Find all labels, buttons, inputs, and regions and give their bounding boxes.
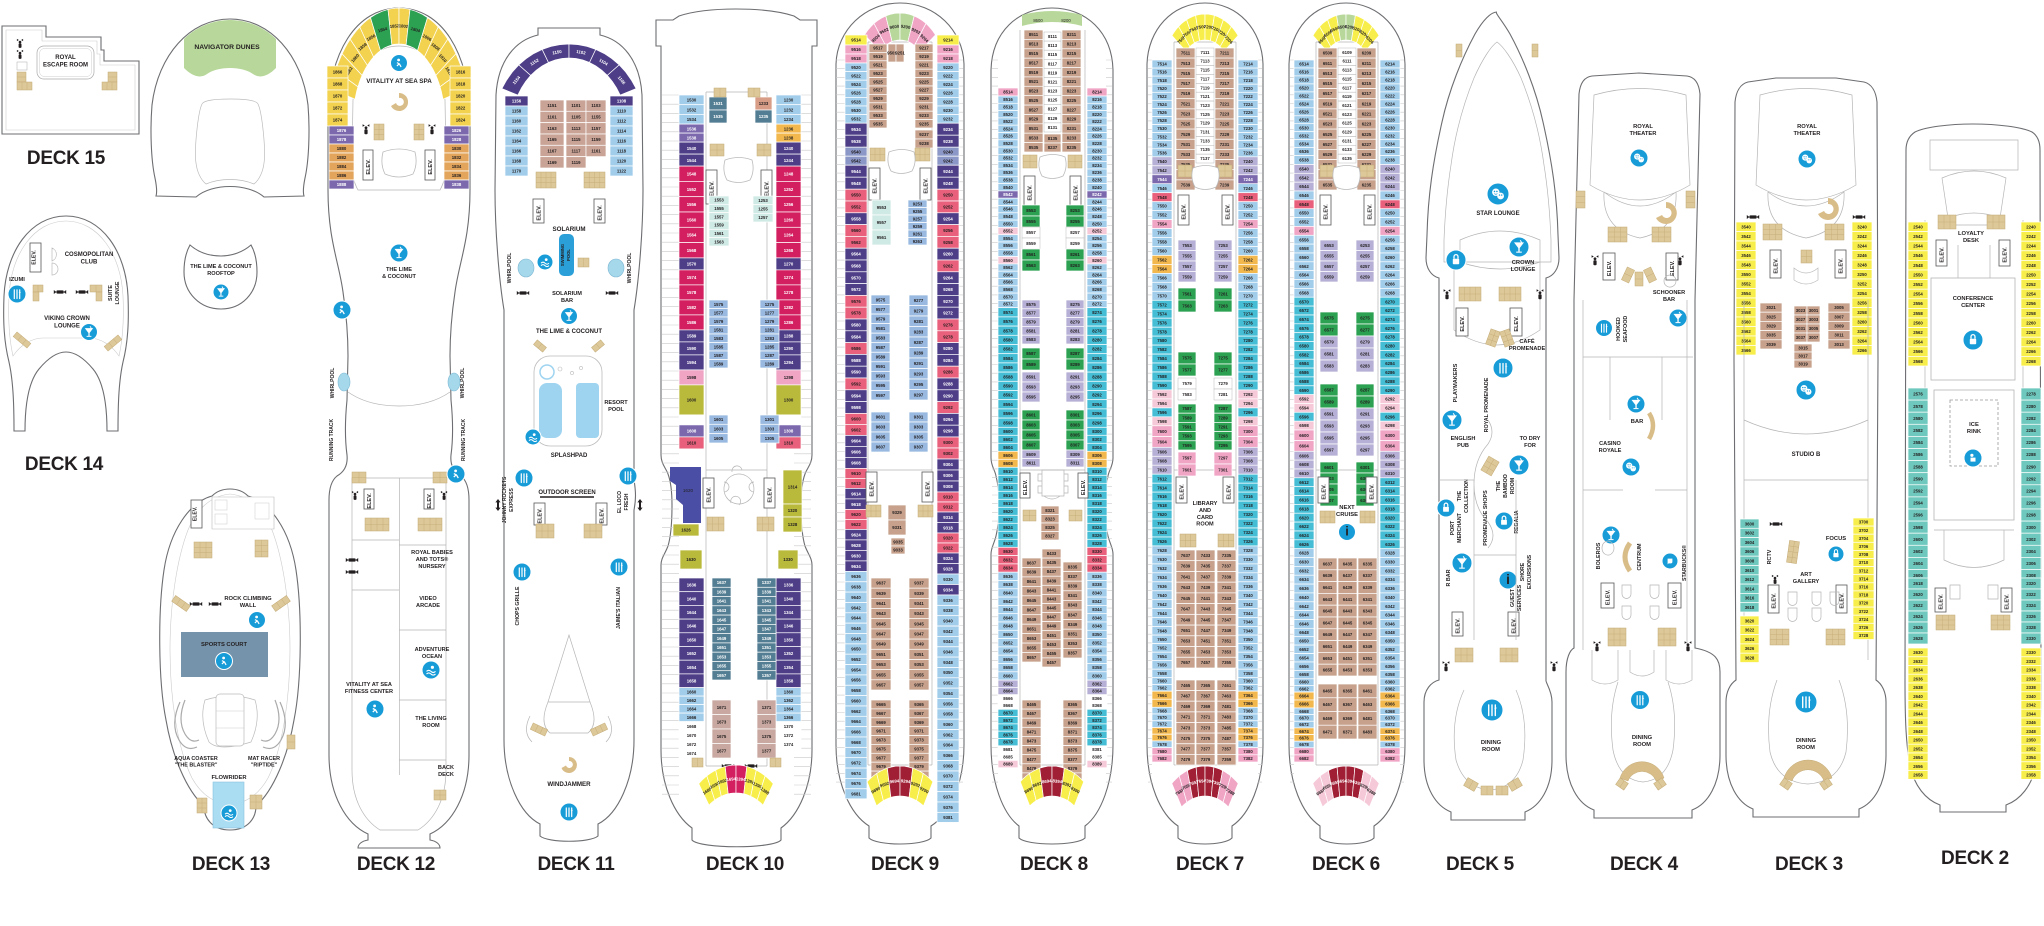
svg-text:6509: 6509 (1323, 51, 1333, 56)
svg-text:3610: 3610 (1745, 568, 1755, 573)
svg-text:8318: 8318 (1092, 501, 1102, 506)
svg-text:BAR: BAR (1631, 419, 1644, 425)
svg-text:6254: 6254 (1385, 228, 1395, 233)
svg-text:6642: 6642 (1299, 604, 1309, 609)
svg-text:9310: 9310 (943, 495, 953, 500)
svg-text:8214: 8214 (1092, 90, 1102, 95)
svg-text:6111: 6111 (1342, 59, 1352, 64)
svg-text:1583: 1583 (714, 336, 724, 341)
svg-text:2302: 2302 (2026, 537, 2036, 542)
svg-text:8340: 8340 (1092, 591, 1102, 596)
svg-text:8586: 8586 (1003, 365, 1013, 370)
svg-text:8230: 8230 (1092, 148, 1102, 153)
svg-text:6277: 6277 (1360, 328, 1370, 333)
svg-text:6525: 6525 (1323, 132, 1333, 137)
svg-text:2640: 2640 (1913, 694, 1923, 699)
svg-text:6213: 6213 (1362, 71, 1372, 76)
svg-text:1575: 1575 (714, 302, 724, 307)
svg-text:8337: 8337 (1068, 574, 1078, 579)
svg-text:9645: 9645 (876, 621, 886, 626)
svg-text:JAIME'S ITALIAN: JAIME'S ITALIAN (616, 587, 622, 629)
svg-text:6368: 6368 (1385, 709, 1395, 714)
svg-text:6530: 6530 (1299, 125, 1309, 130)
svg-text:9526: 9526 (851, 91, 861, 96)
svg-text:VITALITY AT SEA: VITALITY AT SEA (346, 682, 392, 688)
svg-text:8607: 8607 (1026, 443, 1036, 448)
svg-text:8643: 8643 (1027, 589, 1037, 594)
svg-text:1118: 1118 (617, 149, 627, 154)
svg-text:2618: 2618 (1913, 581, 1923, 586)
svg-text:ROOM: ROOM (422, 723, 440, 729)
svg-text:7526: 7526 (1157, 110, 1167, 115)
svg-text:3624: 3624 (1745, 637, 1755, 642)
svg-text:8217: 8217 (1067, 60, 1077, 65)
svg-text:6322: 6322 (1385, 524, 1395, 529)
svg-text:6330: 6330 (1385, 560, 1395, 565)
svg-text:ELEV.: ELEV. (1181, 204, 1187, 220)
svg-text:9612: 9612 (851, 481, 861, 486)
svg-text:3011: 3011 (1834, 333, 1844, 338)
svg-text:6300: 6300 (1385, 433, 1395, 438)
svg-text:9272: 9272 (943, 311, 953, 316)
svg-text:3706: 3706 (1859, 544, 1869, 549)
svg-text:1355: 1355 (762, 664, 772, 669)
svg-text:7292: 7292 (1243, 392, 1253, 397)
svg-text:8570: 8570 (1003, 294, 1013, 299)
svg-text:2308: 2308 (2026, 573, 2036, 578)
svg-text:9238: 9238 (943, 139, 953, 144)
svg-text:7528: 7528 (1157, 118, 1167, 123)
svg-text:6595: 6595 (1324, 436, 1334, 441)
svg-text:9355: 9355 (914, 672, 924, 677)
svg-text:3009: 3009 (1834, 324, 1844, 329)
svg-text:8580: 8580 (1003, 338, 1013, 343)
svg-text:7461: 7461 (1222, 683, 1232, 688)
svg-text:1557: 1557 (714, 214, 724, 219)
svg-text:7310: 7310 (1243, 467, 1253, 472)
svg-text:9033: 9033 (893, 547, 903, 552)
svg-text:WALL: WALL (240, 603, 257, 609)
svg-text:7554: 7554 (1157, 222, 1167, 227)
svg-text:8232: 8232 (1092, 156, 1102, 161)
svg-text:1232: 1232 (784, 107, 794, 112)
svg-text:RUNNING TRACK: RUNNING TRACK (329, 419, 335, 462)
svg-text:9322: 9322 (943, 546, 953, 551)
svg-text:DINING: DINING (1481, 740, 1502, 746)
svg-text:9375: 9375 (914, 746, 924, 751)
svg-text:6318: 6318 (1385, 506, 1395, 511)
svg-text:1354: 1354 (784, 665, 794, 670)
svg-text:7469: 7469 (1181, 704, 1191, 709)
svg-text:7218: 7218 (1243, 78, 1253, 83)
svg-text:ELEV.: ELEV. (366, 159, 372, 175)
svg-text:6666: 6666 (1299, 702, 1309, 707)
svg-text:i: i (1506, 572, 1510, 587)
svg-text:8301: 8301 (1070, 413, 1080, 418)
svg-text:8298: 8298 (1092, 420, 1102, 425)
svg-text:3037: 3037 (1796, 335, 1806, 340)
svg-text:8511: 8511 (1029, 32, 1039, 37)
svg-text:8443: 8443 (1047, 597, 1057, 602)
svg-text:6255: 6255 (1360, 253, 1370, 258)
svg-text:9259: 9259 (913, 224, 923, 229)
svg-text:ELEV.: ELEV. (709, 181, 715, 197)
svg-text:1608: 1608 (687, 429, 697, 434)
svg-text:6301: 6301 (1360, 465, 1370, 470)
svg-text:9234: 9234 (943, 127, 953, 132)
svg-text:7113: 7113 (1200, 59, 1210, 64)
svg-text:9261: 9261 (913, 231, 923, 236)
svg-text:8296: 8296 (1092, 411, 1102, 416)
svg-text:8308: 8308 (1092, 461, 1102, 466)
svg-text:2598: 2598 (1913, 525, 1923, 530)
svg-text:8385: 8385 (1092, 754, 1102, 759)
svg-text:1110: 1110 (617, 109, 627, 114)
svg-text:7297: 7297 (1218, 456, 1228, 461)
svg-text:8125: 8125 (1048, 98, 1058, 103)
svg-text:6121: 6121 (1342, 103, 1352, 108)
svg-text:7356: 7356 (1243, 663, 1253, 668)
svg-text:7287: 7287 (1218, 406, 1228, 411)
svg-text:8343: 8343 (1068, 603, 1078, 608)
svg-text:8603: 8603 (1026, 423, 1036, 428)
svg-text:1255: 1255 (758, 207, 768, 212)
svg-text:7350: 7350 (1243, 637, 1253, 642)
svg-text:6655: 6655 (1323, 668, 1333, 673)
svg-text:7312: 7312 (1243, 476, 1253, 481)
svg-text:6334: 6334 (1385, 577, 1395, 582)
svg-text:6336: 6336 (1385, 586, 1395, 591)
svg-text:9575: 9575 (876, 297, 886, 302)
svg-text:3564: 3564 (1741, 338, 1751, 343)
svg-text:1822: 1822 (456, 106, 466, 111)
svg-text:6634: 6634 (1299, 577, 1309, 582)
svg-text:1834: 1834 (452, 164, 462, 169)
svg-text:1328: 1328 (788, 522, 798, 527)
svg-text:1589: 1589 (687, 334, 697, 339)
svg-text:7119: 7119 (1200, 85, 1210, 90)
svg-text:REGALIA: REGALIA (1514, 510, 1520, 534)
svg-text:8639: 8639 (1027, 570, 1037, 575)
svg-text:9292: 9292 (943, 405, 953, 410)
svg-text:8577: 8577 (1026, 311, 1036, 316)
svg-text:6656: 6656 (1299, 664, 1309, 669)
svg-text:ELEV.: ELEV. (925, 481, 931, 497)
svg-text:8211: 8211 (1067, 32, 1077, 37)
svg-text:2278: 2278 (2026, 392, 2036, 397)
svg-text:ARCADE: ARCADE (416, 603, 440, 609)
svg-text:7532: 7532 (1157, 134, 1167, 139)
svg-text:9655: 9655 (876, 672, 886, 677)
svg-text:8368: 8368 (1092, 703, 1102, 708)
svg-text:9258: 9258 (943, 240, 953, 245)
svg-text:1314: 1314 (788, 485, 798, 490)
svg-text:6641: 6641 (1323, 585, 1333, 590)
svg-text:9523: 9523 (873, 71, 883, 76)
svg-text:1561: 1561 (714, 231, 724, 236)
svg-text:9608: 9608 (851, 461, 861, 466)
svg-text:6117: 6117 (1342, 85, 1352, 90)
svg-text:8521: 8521 (1029, 79, 1039, 84)
svg-text:6556: 6556 (1299, 237, 1309, 242)
svg-text:7587: 7587 (1182, 406, 1192, 411)
svg-text:7437: 7437 (1201, 574, 1211, 579)
svg-text:9248: 9248 (943, 181, 953, 186)
svg-text:6620: 6620 (1299, 515, 1309, 520)
svg-text:FOR: FOR (1524, 443, 1536, 449)
svg-text:6306: 6306 (1385, 453, 1395, 458)
svg-text:8608: 8608 (1003, 461, 1013, 466)
svg-text:1838: 1838 (452, 182, 462, 187)
svg-text:6332: 6332 (1385, 568, 1395, 573)
svg-text:9649: 9649 (876, 642, 886, 647)
svg-text:8335: 8335 (1068, 564, 1078, 569)
svg-text:ELEV.: ELEV. (1838, 258, 1844, 274)
svg-text:1330: 1330 (783, 557, 793, 562)
svg-text:9237: 9237 (919, 132, 929, 137)
svg-text:1626: 1626 (681, 528, 691, 533)
svg-text:7575: 7575 (1182, 356, 1192, 361)
svg-text:8254: 8254 (1092, 236, 1102, 241)
svg-text:8244: 8244 (1092, 199, 1102, 204)
svg-text:1872: 1872 (333, 106, 343, 111)
svg-text:7642: 7642 (1157, 602, 1167, 607)
svg-text:8563: 8563 (1026, 263, 1036, 268)
svg-text:ELEV.: ELEV. (872, 178, 878, 194)
svg-text:3622: 3622 (1745, 628, 1755, 633)
svg-text:3544: 3544 (1741, 243, 1751, 248)
svg-text:3258: 3258 (1857, 310, 1867, 315)
svg-text:3542: 3542 (1741, 234, 1751, 239)
svg-text:7645: 7645 (1181, 596, 1191, 601)
svg-text:8513: 8513 (1029, 42, 1039, 47)
svg-text:ELEV.: ELEV. (427, 493, 433, 509)
svg-text:6291: 6291 (1360, 412, 1370, 417)
svg-text:8554: 8554 (1003, 236, 1013, 241)
svg-text:9270: 9270 (943, 299, 953, 304)
svg-text:7479: 7479 (1181, 757, 1191, 762)
svg-text:8282: 8282 (1092, 347, 1102, 352)
svg-text:6275: 6275 (1360, 316, 1370, 321)
svg-text:7586: 7586 (1157, 365, 1167, 370)
svg-text:ELEV.: ELEV. (1670, 260, 1676, 276)
svg-text:8689: 8689 (1003, 762, 1013, 767)
svg-text:DINING: DINING (1796, 738, 1817, 744)
svg-text:8533: 8533 (1029, 136, 1039, 141)
svg-text:NURSERY: NURSERY (418, 564, 445, 570)
svg-text:7539: 7539 (1181, 183, 1191, 188)
svg-text:2596: 2596 (1913, 513, 1923, 518)
svg-text:6534: 6534 (1299, 141, 1309, 146)
svg-text:9347: 9347 (914, 632, 924, 637)
svg-text:8117: 8117 (1048, 61, 1058, 66)
svg-text:6437: 6437 (1343, 573, 1353, 578)
svg-text:6483: 6483 (1363, 730, 1373, 735)
svg-text:6358: 6358 (1385, 672, 1395, 677)
svg-text:9533: 9533 (873, 113, 883, 118)
svg-text:8222: 8222 (1092, 119, 1102, 124)
svg-text:9630: 9630 (851, 553, 861, 558)
svg-text:1256: 1256 (784, 202, 794, 207)
svg-text:1658: 1658 (687, 679, 697, 684)
svg-text:8640: 8640 (1003, 591, 1013, 596)
svg-text:9373: 9373 (914, 738, 924, 743)
svg-text:6347: 6347 (1363, 632, 1373, 637)
svg-text:8226: 8226 (1092, 134, 1102, 139)
svg-text:1287: 1287 (765, 353, 775, 358)
svg-text:AQUA COASTER: AQUA COASTER (174, 756, 218, 762)
svg-text:8252: 8252 (1092, 229, 1102, 234)
svg-text:ELEV.: ELEV. (1455, 618, 1461, 634)
svg-text:6439: 6439 (1343, 585, 1353, 590)
svg-text:ELEV.: ELEV. (1369, 484, 1375, 500)
svg-text:ELEV.: ELEV. (193, 506, 199, 521)
svg-text:6622: 6622 (1299, 524, 1309, 529)
svg-text:8471: 8471 (1027, 729, 1037, 734)
svg-text:ELEV.: ELEV. (1179, 484, 1185, 500)
svg-text:9648: 9648 (851, 636, 861, 641)
svg-text:6582: 6582 (1299, 352, 1309, 357)
svg-text:2594: 2594 (1913, 501, 1923, 506)
svg-text:8523: 8523 (1029, 89, 1039, 94)
svg-text:8467: 8467 (1027, 711, 1037, 716)
svg-text:9216: 9216 (943, 47, 953, 52)
svg-text:8435: 8435 (1047, 560, 1057, 565)
svg-text:8353: 8353 (1068, 641, 1078, 646)
svg-text:8224: 8224 (1092, 126, 1102, 131)
svg-text:6350: 6350 (1385, 639, 1395, 644)
svg-text:6376: 6376 (1385, 736, 1395, 741)
svg-text:9590: 9590 (851, 370, 861, 375)
svg-text:1882: 1882 (337, 155, 347, 160)
svg-text:7511: 7511 (1181, 51, 1191, 56)
svg-text:1282: 1282 (784, 305, 794, 310)
svg-text:8286: 8286 (1092, 365, 1102, 370)
svg-text:6559: 6559 (1324, 274, 1334, 279)
svg-text:8578: 8578 (1003, 328, 1013, 333)
svg-text:6589: 6589 (1324, 400, 1334, 405)
svg-text:1289: 1289 (765, 361, 775, 366)
svg-text:8658: 8658 (1003, 665, 1013, 670)
svg-text:9581: 9581 (876, 326, 886, 331)
svg-text:9605: 9605 (876, 435, 886, 440)
svg-text:8351: 8351 (1068, 632, 1078, 637)
svg-text:8653: 8653 (1027, 636, 1037, 641)
svg-text:1556: 1556 (687, 202, 697, 207)
svg-text:CRUISE: CRUISE (1336, 512, 1358, 518)
svg-text:7370: 7370 (1243, 715, 1253, 720)
svg-text:7224: 7224 (1243, 102, 1253, 107)
svg-text:7678: 7678 (1157, 742, 1167, 747)
svg-text:WHIRLPOOL: WHIRLPOOL (460, 368, 466, 399)
svg-text:2654: 2654 (1913, 755, 1923, 760)
svg-text:9231: 9231 (919, 105, 929, 110)
svg-text:1340: 1340 (784, 596, 794, 601)
svg-text:7473: 7473 (1181, 725, 1191, 730)
svg-text:SCHOONER: SCHOONER (1653, 290, 1685, 296)
svg-text:2652: 2652 (1913, 746, 1923, 751)
svg-text:CENTER: CENTER (1961, 303, 1986, 309)
svg-text:9218: 9218 (943, 56, 953, 61)
svg-text:8519: 8519 (1029, 70, 1039, 75)
svg-text:8546: 8546 (1003, 207, 1013, 212)
svg-text:1151: 1151 (547, 103, 557, 108)
svg-text:ELEV.: ELEV. (869, 481, 875, 497)
svg-text:8531: 8531 (1029, 126, 1039, 131)
svg-text:7568: 7568 (1157, 284, 1167, 289)
svg-text:9644: 9644 (851, 616, 861, 621)
svg-text:DECK 9: DECK 9 (871, 854, 939, 875)
svg-text:8595: 8595 (1026, 395, 1036, 400)
svg-text:7369: 7369 (1201, 704, 1211, 709)
svg-text:1156: 1156 (512, 99, 522, 104)
svg-text:8517: 8517 (1029, 60, 1039, 65)
svg-text:3013: 3013 (1834, 342, 1844, 347)
svg-text:1555: 1555 (714, 206, 724, 211)
svg-text:6542: 6542 (1299, 175, 1309, 180)
svg-text:1552: 1552 (687, 187, 697, 192)
svg-text:SERVICES: SERVICES (1517, 584, 1523, 611)
svg-text:ENGLISH: ENGLISH (1451, 436, 1476, 442)
svg-text:8535: 8535 (1029, 145, 1039, 150)
svg-text:WHIRLPOOL: WHIRLPOOL (627, 253, 633, 284)
svg-text:7640: 7640 (1157, 593, 1167, 598)
svg-text:7467: 7467 (1181, 694, 1191, 699)
svg-text:6348: 6348 (1385, 630, 1395, 635)
svg-text:LOUNGE: LOUNGE (1511, 267, 1536, 273)
svg-text:7559: 7559 (1182, 274, 1192, 279)
svg-text:9592: 9592 (851, 382, 861, 387)
svg-text:9552: 9552 (851, 205, 861, 210)
svg-text:8344: 8344 (1092, 607, 1102, 612)
svg-text:7374: 7374 (1243, 728, 1253, 733)
svg-text:6626: 6626 (1299, 542, 1309, 547)
svg-text:7588: 7588 (1157, 374, 1167, 379)
svg-text:6378: 6378 (1385, 742, 1395, 747)
svg-text:9634: 9634 (851, 564, 861, 569)
svg-text:THEATER: THEATER (1794, 131, 1822, 137)
svg-text:9591: 9591 (876, 364, 886, 369)
svg-text:8294: 8294 (1092, 402, 1102, 407)
svg-text:9586: 9586 (851, 346, 861, 351)
svg-text:8327: 8327 (1045, 533, 1055, 538)
svg-text:3266: 3266 (1857, 348, 1867, 353)
svg-text:ROOM: ROOM (1797, 745, 1815, 751)
svg-text:DECK: DECK (438, 772, 454, 778)
svg-text:3626: 3626 (1745, 646, 1755, 651)
svg-text:3027: 3027 (1796, 317, 1806, 322)
svg-text:1290: 1290 (784, 346, 794, 351)
svg-text:1163: 1163 (547, 126, 557, 131)
svg-text:6328: 6328 (1385, 551, 1395, 556)
svg-text:8376: 8376 (1092, 732, 1102, 737)
svg-text:7583: 7583 (1182, 392, 1192, 397)
svg-text:8441: 8441 (1047, 587, 1057, 592)
svg-text:DECK 10: DECK 10 (706, 854, 784, 875)
svg-text:7343: 7343 (1222, 596, 1232, 601)
svg-text:7590: 7590 (1157, 383, 1167, 388)
svg-text:7540: 7540 (1157, 159, 1167, 164)
svg-text:6240: 6240 (1385, 167, 1395, 172)
svg-text:8678: 8678 (1003, 740, 1013, 745)
svg-text:1620: 1620 (683, 488, 694, 493)
svg-text:8648: 8648 (1003, 624, 1013, 629)
svg-text:2650: 2650 (1913, 738, 1923, 743)
svg-text:6555: 6555 (1324, 253, 1334, 258)
svg-text:9294: 9294 (943, 417, 953, 422)
svg-text:2320: 2320 (2026, 581, 2036, 586)
svg-text:POOL: POOL (608, 407, 624, 413)
